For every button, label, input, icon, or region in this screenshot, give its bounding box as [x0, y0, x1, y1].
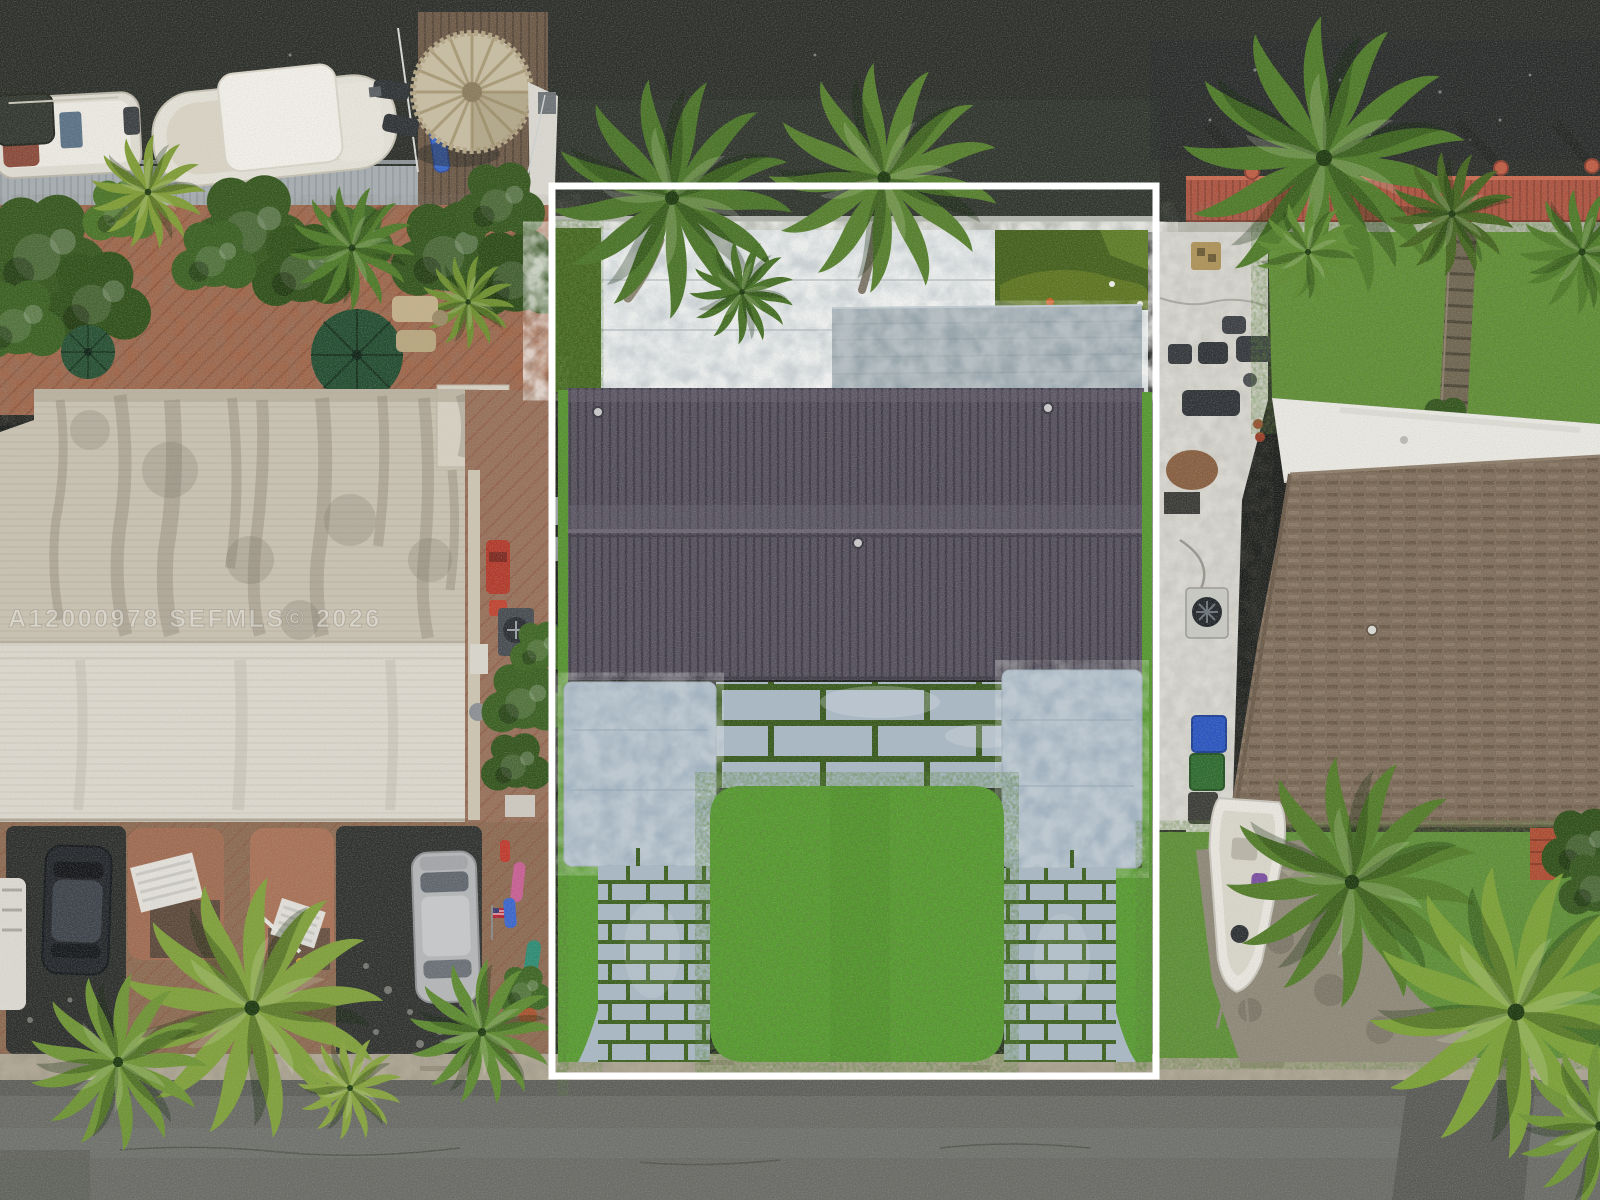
photo-grain: [0, 0, 1600, 1200]
aerial-photo-canvas: A12000978 SEFMLS© 2026: [0, 0, 1600, 1200]
aerial-photo: A12000978 SEFMLS© 2026: [0, 0, 1600, 1200]
mls-watermark: A12000978 SEFMLS© 2026: [8, 605, 382, 633]
